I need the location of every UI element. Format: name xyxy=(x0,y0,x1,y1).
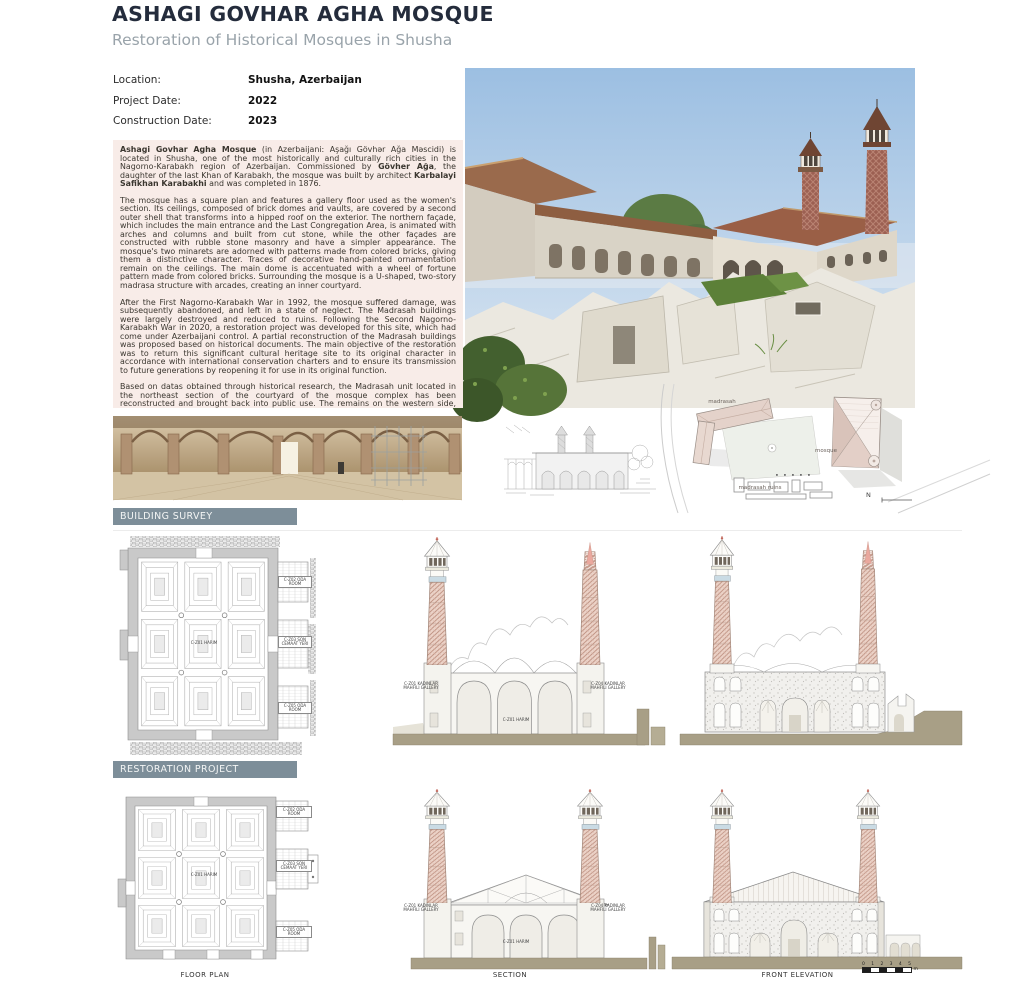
section-label-harim: C-Z01 HARIM xyxy=(497,939,535,945)
siteplan-ruins-label: madrasah ruins xyxy=(728,485,792,491)
plan-label-harim: C-Z01 HARIM xyxy=(178,640,230,646)
info-value: Shusha, Azerbaijan xyxy=(248,74,362,86)
info-value: 2023 xyxy=(248,115,277,127)
description-block: Ashagi Govhar Agha Mosque (in Azerbaijan… xyxy=(113,140,463,408)
poster-board: ASHAGI GOVHAR AGHA MOSQUE Restoration of… xyxy=(0,0,1031,987)
info-value: 2022 xyxy=(248,95,277,107)
plan-label-son-cemaat: C-Z03 SON CEMAAT YERI xyxy=(276,860,312,872)
information-sign xyxy=(795,302,821,315)
scale-bar: 0 1 2 3 4 5 m xyxy=(862,962,922,973)
section-header-label: RESTORATION PROJECT xyxy=(120,764,239,775)
plan-label-harim: C-Z01 HARIM xyxy=(179,872,229,878)
siteplan-mosque-label: mosque xyxy=(808,448,844,454)
section-label-harim: C-Z01 HARIM xyxy=(497,717,535,723)
historical-engraving xyxy=(500,419,660,499)
siteplan-north-label: N xyxy=(866,491,871,499)
description-paragraph: The mosque has a square plan and feature… xyxy=(120,197,456,291)
plan-label-room-top: C-Z02 ODA ROOM xyxy=(278,576,312,588)
siteplan-madrasah-label: madrasah xyxy=(700,399,744,405)
scale-bar-graphic xyxy=(862,967,912,973)
info-row-construction-date: Construction Date: 2023 xyxy=(113,111,458,132)
caption-front-elevation: FRONT ELEVATION xyxy=(745,971,850,979)
section-header-restoration-project: RESTORATION PROJECT xyxy=(113,761,297,778)
restoration-elevation-drawing xyxy=(672,789,962,969)
survey-section-drawing xyxy=(393,537,665,745)
section-header-building-survey: BUILDING SURVEY xyxy=(113,508,297,525)
description-paragraph: Ashagi Govhar Agha Mosque (in Azerbaijan… xyxy=(120,146,456,189)
info-label: Construction Date: xyxy=(113,115,248,127)
page-subtitle: Restoration of Historical Mosques in Shu… xyxy=(112,31,452,49)
caption-section: SECTION xyxy=(465,971,555,979)
section-label-gallery-left: C-Z01 KADINLAR MAHFILI GALLERY xyxy=(398,681,444,691)
plan-label-son-cemaat: C-Z03 SON CEMAAT YERI xyxy=(278,636,312,648)
section-header-label: BUILDING SURVEY xyxy=(120,511,213,522)
description-paragraph: After the First Nagorno-Karabakh War in … xyxy=(120,299,456,376)
info-label: Location: xyxy=(113,74,248,86)
info-label: Project Date: xyxy=(113,95,248,107)
info-row-project-date: Project Date: 2022 xyxy=(113,91,458,112)
survey-elevation-drawing xyxy=(680,536,962,745)
plan-label-room-top: C-Z02 ODA ROOM xyxy=(276,806,312,818)
plan-label-room-bottom: C-Z05 ODA ROOM xyxy=(276,926,312,938)
section-label-gallery-left: C-Z01 KADINLAR MAHFILI GALLERY xyxy=(398,903,444,913)
main-photo xyxy=(451,68,915,422)
info-table: Location: Shusha, Azerbaijan Project Dat… xyxy=(113,70,458,132)
divider-rule xyxy=(113,530,962,531)
restoration-section-drawing xyxy=(411,789,665,969)
description-paragraph: Based on datas obtained through historic… xyxy=(120,383,456,408)
page-title: ASHAGI GOVHAR AGHA MOSQUE xyxy=(112,2,494,26)
interior-panorama-photo xyxy=(113,416,462,500)
info-row-location: Location: Shusha, Azerbaijan xyxy=(113,70,458,91)
section-label-gallery-right: C-Z04 KADINLAR MAHFILI GALLERY xyxy=(585,681,631,691)
caption-floor-plan: FLOOR PLAN xyxy=(160,971,250,979)
section-label-gallery-right: C-Z04 KADINLAR MAHFILI GALLERY xyxy=(585,903,631,913)
scale-bar-unit: m xyxy=(914,967,918,972)
plan-label-room-bottom: C-Z05 ODA ROOM xyxy=(278,702,312,714)
